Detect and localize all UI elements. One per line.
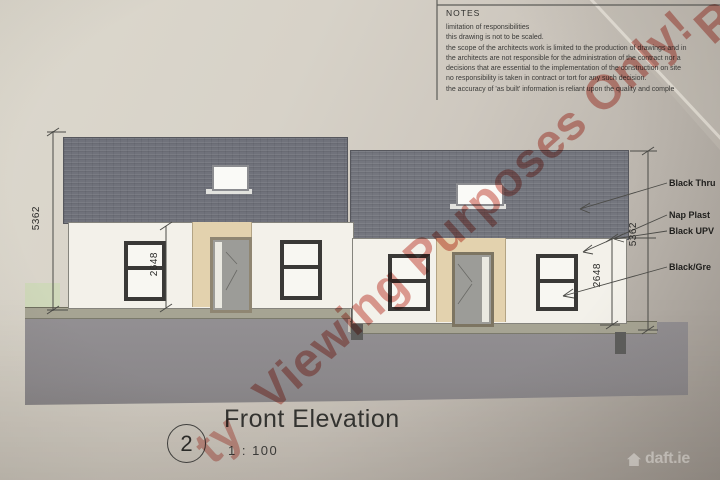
drawing-number-circle: 2 [167,424,206,463]
window [388,254,430,311]
notes-line: the architects are not responsible for t… [446,54,720,64]
entrance-door-left [210,237,252,313]
scanned-elevation-drawing: { "notes": { "title": "NOTES", "lines": … [0,0,720,480]
annotation-upvc-gutter: Black UPV [669,226,714,236]
notes-line: decisions that are essential to the impl… [446,64,720,74]
dimension-label-left-overall: 5362 [31,206,42,230]
rooflight-left [212,165,249,191]
window-rail [540,279,574,283]
drawing-scale: 1 : 100 [228,443,278,458]
door-sidelight [482,257,489,322]
dimension-label-right-overall: 5362 [628,222,639,246]
window-rail [392,279,426,283]
annotation-roof-slates: Black Thru [669,178,716,188]
notes-line: limitation of responsibilities [446,23,720,33]
notes-line: this drawing is not to be scaled. [446,33,720,43]
daft-logo: daft.ie [626,450,690,468]
notes-line: no responsibility is taken in contract o… [446,74,720,84]
window [280,240,322,300]
annotation-windows: Black/Gre [669,262,711,272]
window-rail [284,265,318,269]
daft-logo-text: daft.ie [645,450,690,468]
dimension-label-left-wall: 2648 [149,252,160,276]
door-sidelight [215,242,222,308]
foundation-post [615,332,626,354]
dimension-label-right-wall: 2648 [592,263,603,287]
notes-line: the accuracy of 'as built' information i… [446,85,720,95]
window [536,254,578,311]
annotation-wall-plaster: Nap Plast [669,210,710,220]
drawing-title: Front Elevation [224,405,400,434]
entrance-door-right [452,252,494,327]
notes-line: the scope of the architects work is limi… [446,44,720,54]
notes-heading: NOTES [446,8,480,18]
rooflight-right [456,183,504,206]
roof-left [63,137,348,224]
notes-paragraph: limitation of responsibilities this draw… [446,23,720,95]
grass-patch [25,283,60,307]
house-icon [626,452,642,467]
